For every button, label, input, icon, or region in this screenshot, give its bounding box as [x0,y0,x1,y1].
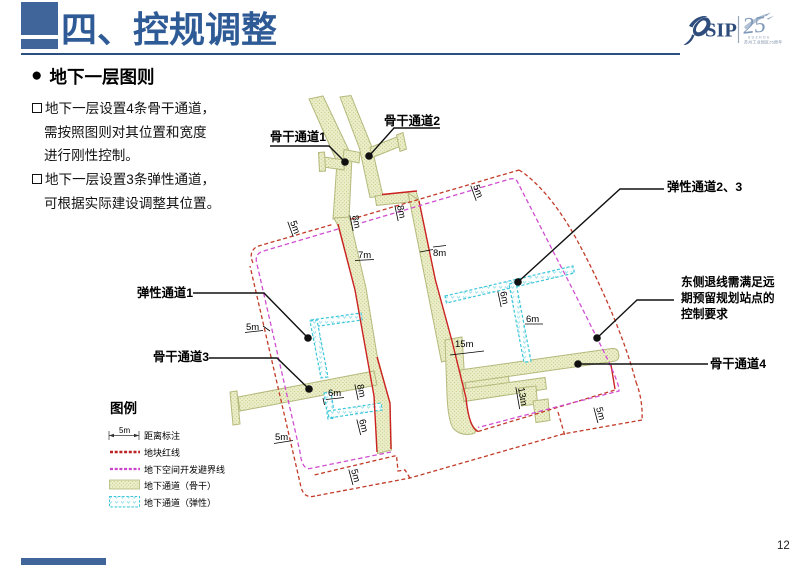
svg-text:距离标注: 距离标注 [144,430,180,441]
svg-text:弹性通道2、3: 弹性通道2、3 [667,179,742,194]
svg-text:骨干通道2: 骨干通道2 [384,113,440,128]
svg-text:期预留规划站点的: 期预留规划站点的 [681,291,775,305]
svg-text:8m: 8m [433,248,446,259]
svg-text:5m: 5m [119,426,130,435]
svg-text:6m: 6m [328,388,341,399]
svg-text:地下通道（骨干）: 地下通道（骨干） [144,480,216,491]
svg-text:地下通道（弹性）: 地下通道（弹性） [144,497,216,508]
svg-text:弹性通道1: 弹性通道1 [137,285,193,300]
svg-text:骨干通道1: 骨干通道1 [270,129,326,144]
svg-text:控制要求: 控制要求 [681,307,728,321]
svg-text:骨干通道3: 骨干通道3 [153,349,209,364]
svg-text:骨干通道4: 骨干通道4 [710,356,766,371]
svg-text:图例: 图例 [110,400,137,416]
svg-text:15m: 15m [455,339,474,350]
svg-text:地下空间开发避界线: 地下空间开发避界线 [144,464,225,475]
svg-text:地块红线: 地块红线 [144,447,180,458]
svg-text:6m: 6m [526,314,539,325]
svg-text:东侧退线需满足远: 东侧退线需满足远 [681,275,775,289]
